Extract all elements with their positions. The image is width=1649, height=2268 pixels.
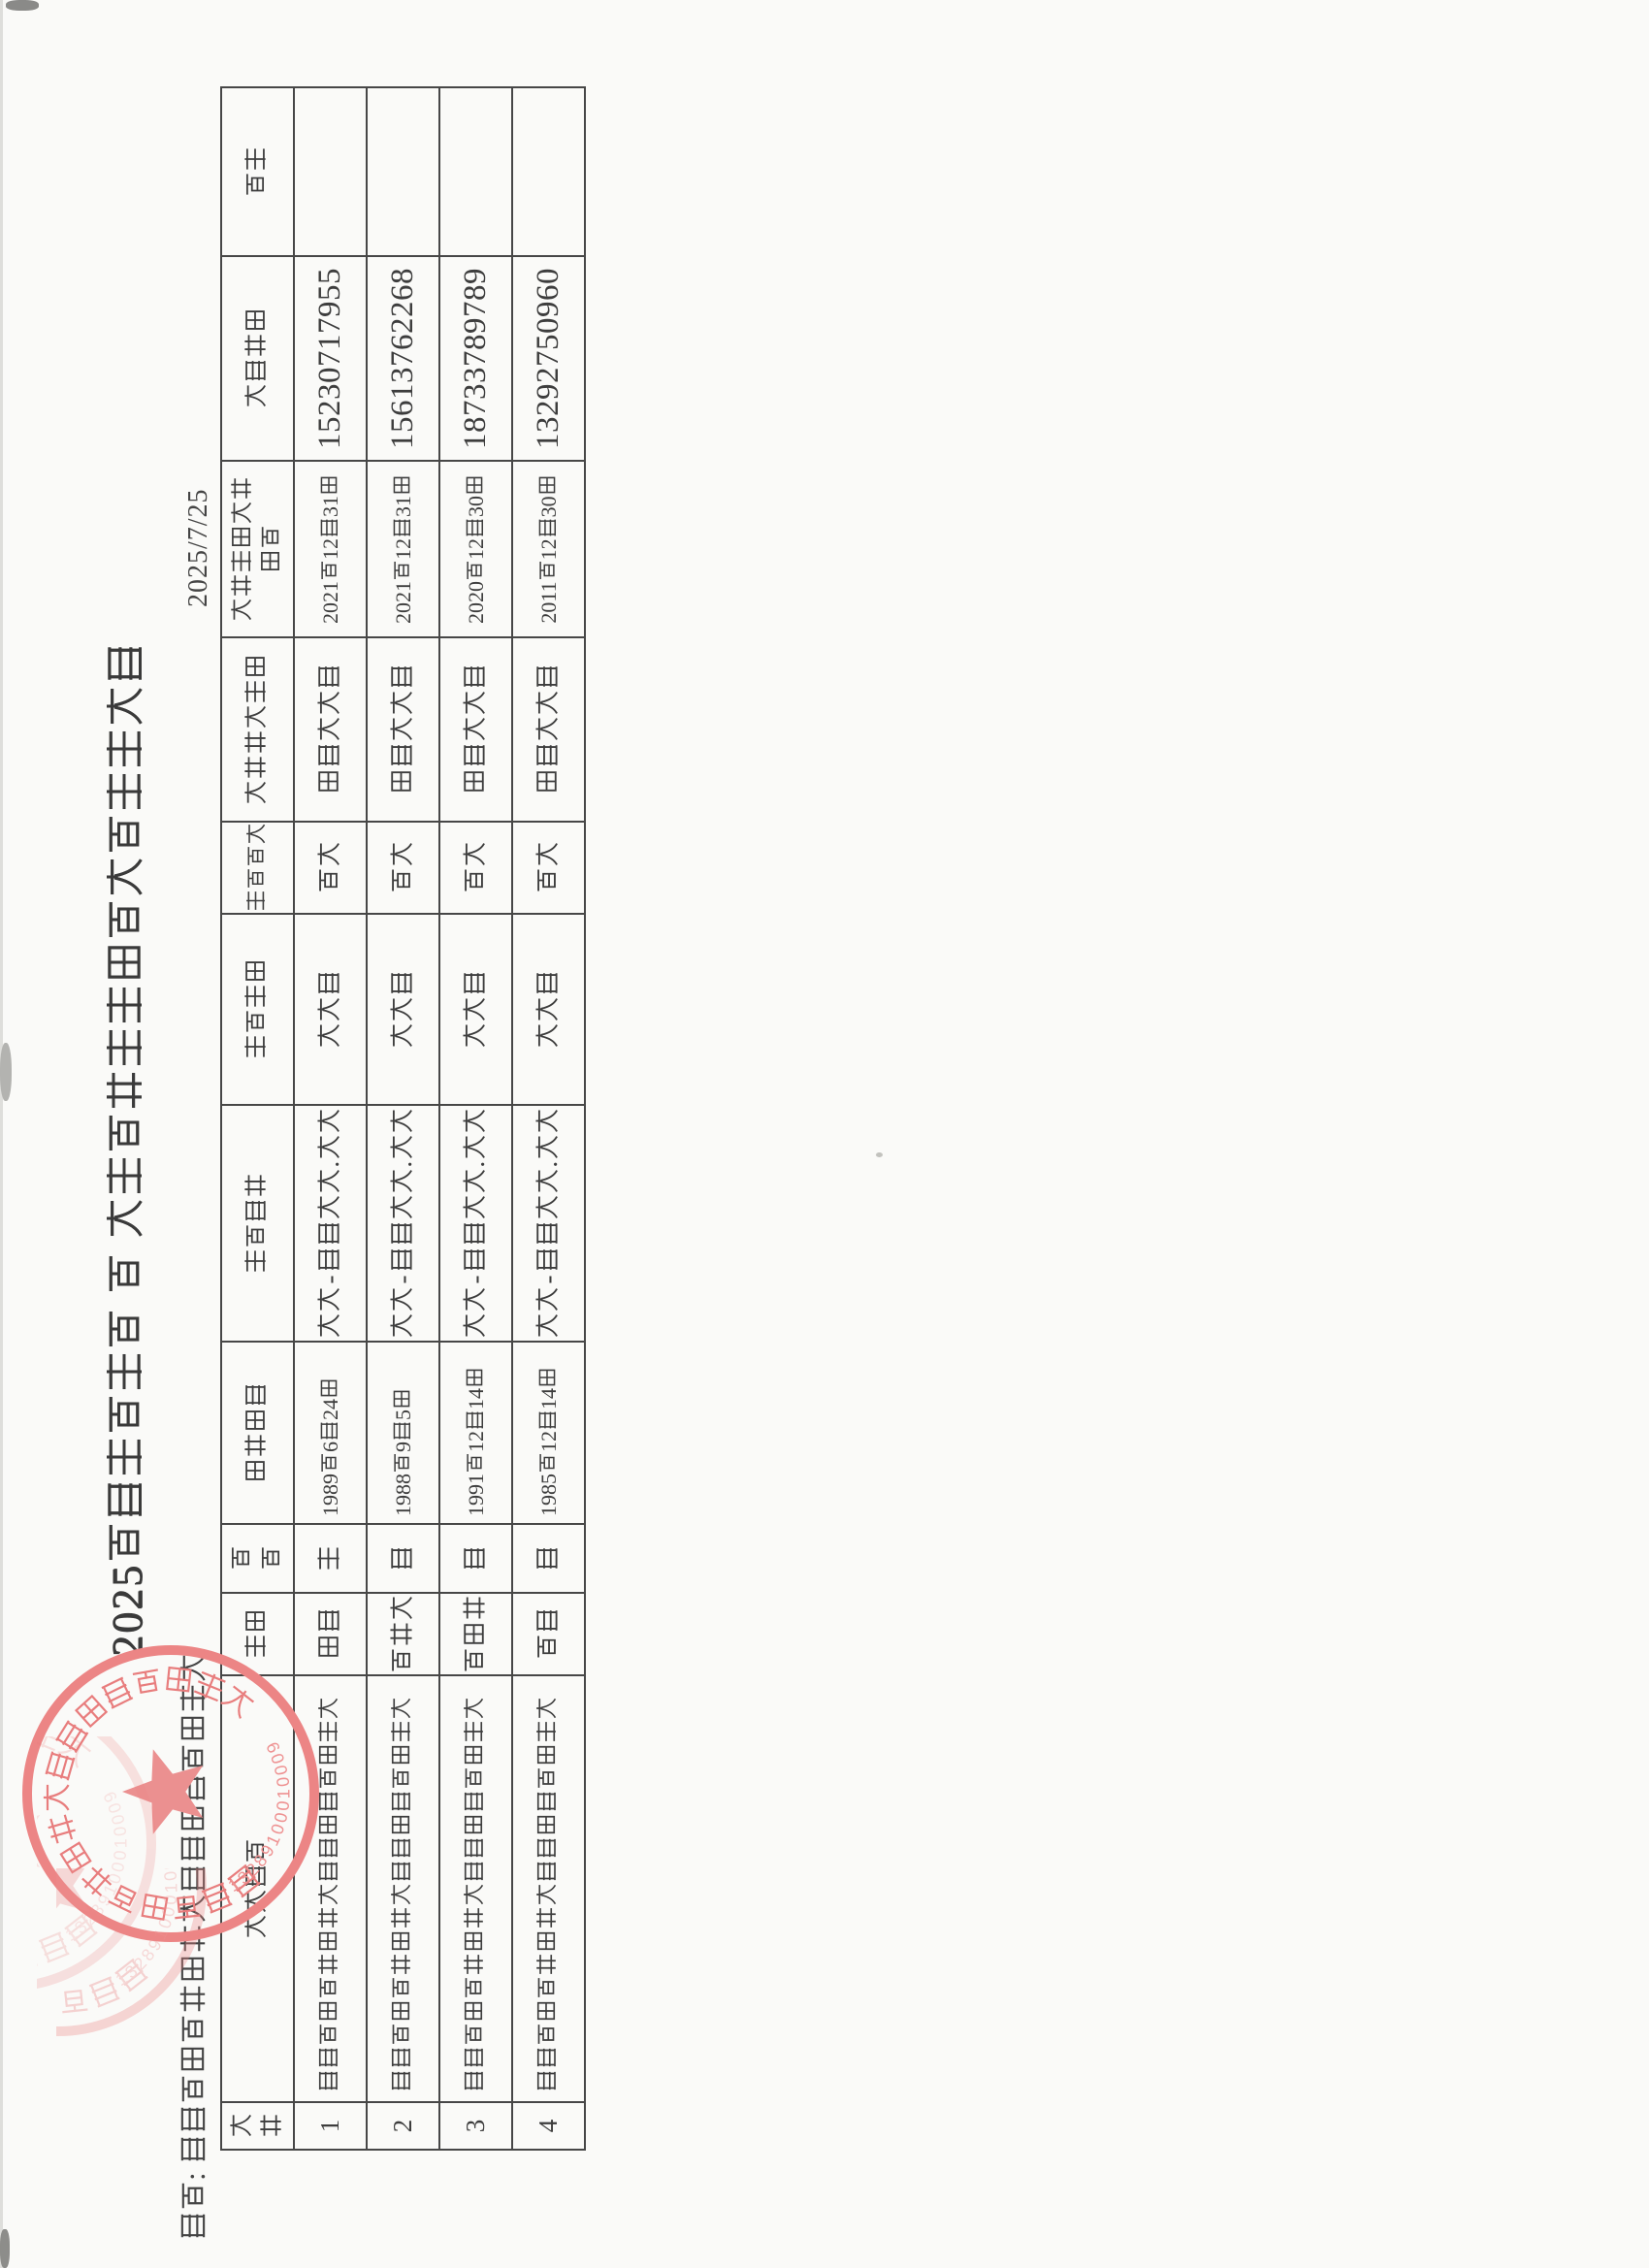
svg-text:13289100010009: 13289100010009 bbox=[225, 1736, 294, 1895]
